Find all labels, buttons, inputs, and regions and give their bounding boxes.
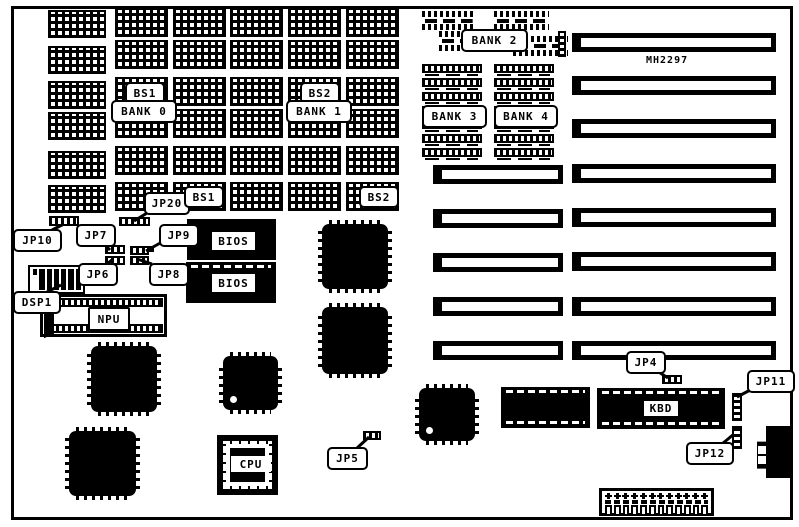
- label-bank1: BANK 1: [286, 100, 352, 123]
- label-bank3: BANK 3: [422, 105, 487, 128]
- label-jp11: JP11: [747, 370, 795, 393]
- label-jp6: JP6: [78, 263, 118, 286]
- label-dsp1: DSP1: [13, 291, 61, 314]
- label-jp5: JP5: [327, 447, 368, 470]
- label-bs1-bottom: BS1: [184, 186, 224, 208]
- motherboard-layout-diagram: BS1 BANK 0 BS2 BANK 1 JP20 BS1 BS2 BANK …: [0, 0, 799, 527]
- label-jp7: JP7: [76, 224, 116, 247]
- label-jp9: JP9: [159, 224, 199, 247]
- label-kbd: KBD: [644, 401, 678, 416]
- label-bank2: BANK 2: [461, 29, 528, 52]
- label-jp12: JP12: [686, 442, 734, 465]
- label-bank4: BANK 4: [494, 105, 558, 128]
- board-model-number: MH2297: [646, 55, 688, 66]
- label-npu: NPU: [88, 307, 130, 331]
- label-cpu: CPU: [231, 456, 271, 472]
- label-jp8: JP8: [149, 263, 189, 286]
- label-jp4: JP4: [626, 351, 666, 374]
- label-bank0: BANK 0: [111, 100, 177, 123]
- label-bios-top: BIOS: [210, 230, 257, 252]
- label-bios-bottom: BIOS: [210, 272, 257, 294]
- label-bs2-bottom: BS2: [359, 186, 399, 208]
- label-jp10: JP10: [13, 229, 62, 252]
- callout-lines: [0, 0, 799, 527]
